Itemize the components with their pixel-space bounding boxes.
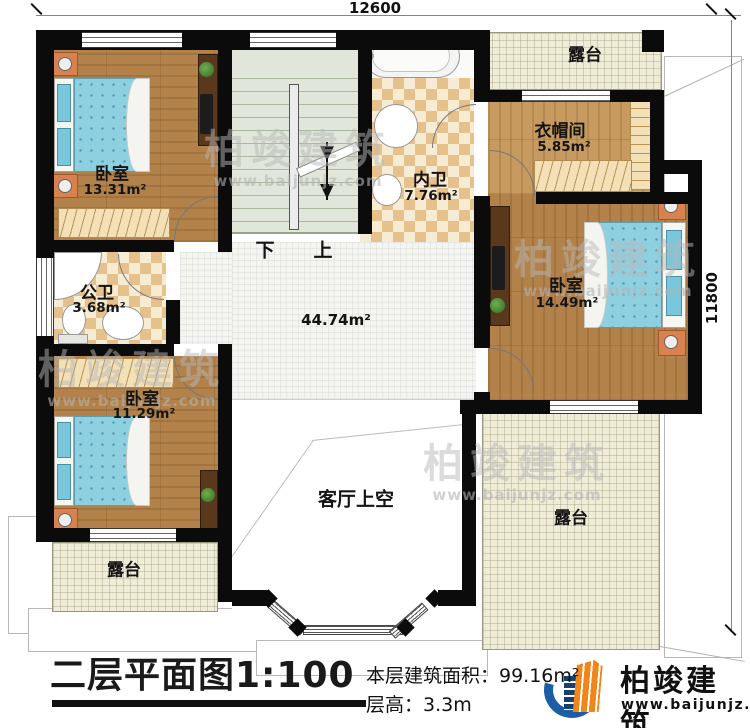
room-label-cloakroom: 衣帽间 xyxy=(535,117,586,142)
wall-stairs-right xyxy=(358,30,372,234)
dimension-label-right: 11800 xyxy=(703,272,721,324)
bed-cushion xyxy=(57,464,71,500)
nightstand xyxy=(658,330,686,356)
wall-cloak-bedroom-sep xyxy=(536,192,688,204)
lamp-icon xyxy=(664,335,678,349)
wall-bath-right-lower xyxy=(474,196,490,254)
dimension-line-right xyxy=(731,20,732,632)
stair-label-down: 下 xyxy=(255,236,274,263)
brand-url: www.baijunjz.com xyxy=(621,697,750,713)
wardrobe xyxy=(58,208,170,238)
wall-bedroom-bl-bottom-left xyxy=(36,528,90,542)
stair-arrow-head xyxy=(320,184,334,199)
wall-bedroom1-bottom-end xyxy=(218,240,232,252)
stair-label-up: 上 xyxy=(313,236,332,263)
room-label-bedroom-top-left: 卧室 xyxy=(95,160,129,185)
wardrobe xyxy=(630,96,652,190)
wall-terrace-corner-block xyxy=(642,30,664,52)
room-label-living-void: 客厅上空 xyxy=(318,485,394,512)
window xyxy=(522,90,610,102)
room-label-terrace-top: 露台 xyxy=(568,41,602,66)
wall-bedroom1-bottom xyxy=(36,240,174,252)
room-area-hall: 44.74m² xyxy=(301,311,371,329)
wall-bedroom-bl-bottom-right xyxy=(176,528,232,542)
room-area-ensuite-bath: 7.76m² xyxy=(404,188,457,204)
room-area-cloakroom: 5.85m² xyxy=(537,139,590,155)
plant-icon xyxy=(490,298,505,313)
plan-title: 二层平面图1:100 xyxy=(50,646,355,698)
lamp-icon xyxy=(58,179,72,193)
dimension-tick xyxy=(705,3,717,15)
wall-hall-left xyxy=(218,344,232,602)
wall-bedroom-right-left-upper xyxy=(474,254,490,348)
room-area-public-bath: 3.68m² xyxy=(72,300,125,316)
room-label-terrace-bottom-left: 露台 xyxy=(107,556,141,581)
wall-publicbath-bottom xyxy=(36,344,174,356)
room-area-bedroom-bottom-left: 11.29m² xyxy=(113,406,176,422)
lamp-icon xyxy=(58,513,72,527)
floor-ensuite-bath xyxy=(360,78,474,242)
window xyxy=(36,258,54,336)
wardrobe xyxy=(58,358,174,388)
nightstand xyxy=(52,174,78,198)
stair-rail xyxy=(289,84,299,230)
plant-icon xyxy=(201,488,215,502)
monitor-icon xyxy=(492,246,505,290)
window xyxy=(250,32,336,48)
window xyxy=(82,32,182,48)
dimension-tick xyxy=(30,3,42,15)
plan-height-text: 层高：3.3m xyxy=(366,691,472,720)
floor-terrace-bottom-right xyxy=(482,412,660,650)
dimension-tick xyxy=(724,8,736,20)
monitor-icon xyxy=(200,94,213,134)
bed-cushion xyxy=(57,84,71,122)
room-label-ensuite-bath: 内卫 xyxy=(413,166,447,191)
wall-publicbath-right xyxy=(166,300,180,344)
bed-duvet-fold xyxy=(126,416,150,506)
title-underline xyxy=(52,700,366,707)
bed-duvet-fold xyxy=(584,222,608,328)
sink-icon xyxy=(374,104,418,148)
bed-cushion xyxy=(666,230,682,270)
wall-bedroom-r-bottom-left xyxy=(460,400,550,414)
lamp-icon xyxy=(58,57,72,71)
plant-icon xyxy=(199,62,214,77)
bed-cushion xyxy=(57,128,71,166)
room-label-terrace-bottom-right: 露台 xyxy=(554,504,588,529)
room-area-bedroom-top-left: 13.31m² xyxy=(84,182,147,198)
stair-hall-edge xyxy=(232,232,358,234)
dimension-label-top: 12600 xyxy=(340,0,410,17)
wall-stairs-left xyxy=(218,30,232,240)
wall-terrace-br-left xyxy=(462,414,476,604)
wall-cloak-right xyxy=(650,90,664,194)
hall-void-edge xyxy=(232,399,476,400)
toilet-tank-icon xyxy=(58,334,88,344)
wall-bedroom-r-bottom-right xyxy=(638,400,702,414)
toilet-bowl-icon xyxy=(372,174,402,206)
plan-area-text: 本层建筑面积：99.16m² xyxy=(366,662,580,691)
wall-bath-right-upper xyxy=(474,30,490,98)
clothes-rail xyxy=(534,160,632,192)
room-area-bedroom-right: 14.49m² xyxy=(536,295,599,311)
wall-terrace-cloak-left xyxy=(474,90,522,102)
bed-cushion xyxy=(666,276,682,316)
room-label-bedroom-right: 卧室 xyxy=(549,272,583,297)
brand-name: 柏竣建筑 xyxy=(620,656,750,728)
floor-hall-strip xyxy=(180,252,232,344)
window xyxy=(550,400,638,414)
bed-duvet-fold xyxy=(126,78,150,172)
wall-bedroom-right-outer xyxy=(688,160,702,414)
bed-cushion xyxy=(57,422,71,458)
nightstand xyxy=(52,52,78,76)
stair-arrow-head xyxy=(320,146,334,161)
window xyxy=(90,528,176,542)
floor-plan-canvas: 柏竣建筑 www.baijunjz.com 柏竣建筑 www.baijunjz.… xyxy=(0,0,750,728)
